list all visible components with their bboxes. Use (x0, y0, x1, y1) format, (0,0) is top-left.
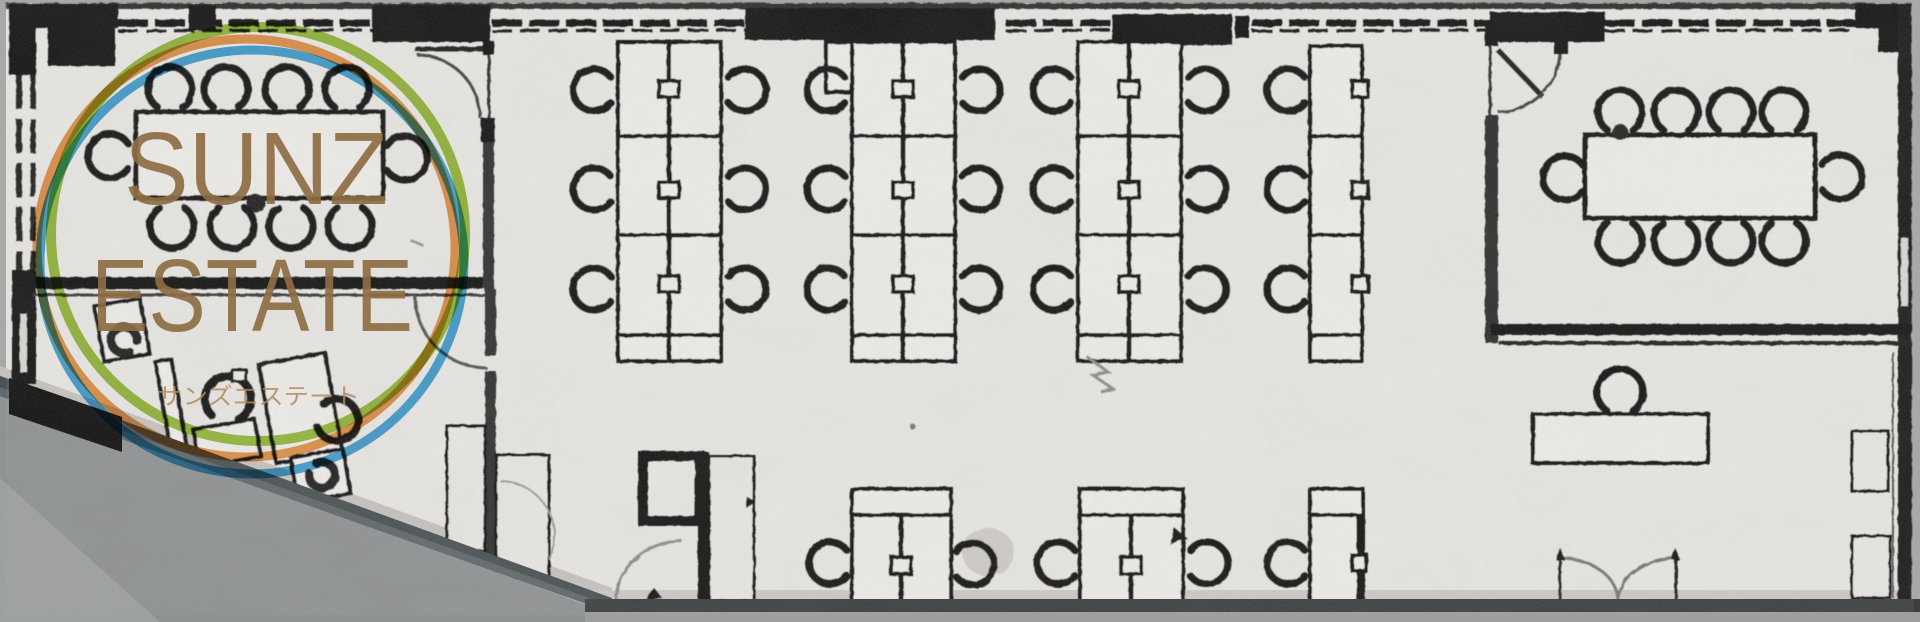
svg-text:サンズエステート: サンズエステート (157, 383, 360, 409)
svg-text:ESTATE: ESTATE (91, 238, 413, 353)
svg-text:SUNZ: SUNZ (124, 111, 388, 226)
